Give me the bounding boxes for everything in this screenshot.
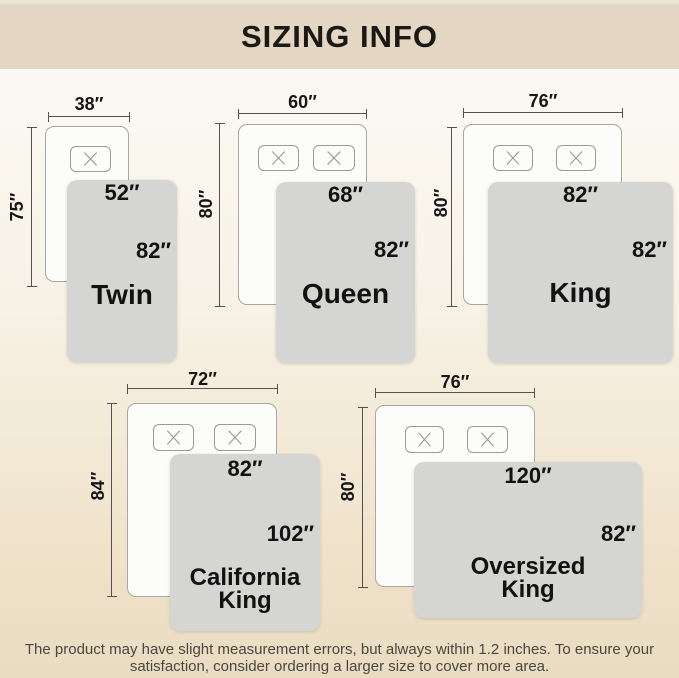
bed-length-label: 80″ [196, 174, 216, 234]
blanket-length-label: 82″ [276, 239, 409, 261]
size-name: Twin [67, 282, 177, 308]
size-name-line2: King [170, 589, 320, 612]
disclaimer-line1: The product may have slight measurement … [0, 641, 679, 658]
pillow-x-icon [258, 145, 299, 171]
size-name-line1: Oversized [414, 555, 642, 578]
bed-width-dimension-line [375, 388, 535, 398]
size-name-line2: King [414, 578, 642, 601]
header-band: SIZING INFO [0, 0, 679, 69]
blanket: 82″ 102″ California King [170, 454, 320, 631]
size-name: King [488, 280, 673, 306]
blanket-width-label: 82″ [488, 184, 673, 206]
size-name: California King [170, 566, 320, 612]
bed-width-dimension-line [48, 112, 130, 122]
bed-length-label: 75″ [7, 177, 27, 237]
blanket-length-label: 82″ [67, 240, 171, 262]
blanket-width-label: 120″ [414, 465, 642, 487]
size-name: Queen [276, 281, 415, 307]
pillow-x-icon [313, 145, 355, 171]
bed-length-dimension-line [447, 127, 457, 307]
bed-length-dimension-line [27, 127, 37, 287]
size-name-line1: Queen [276, 281, 415, 307]
sizing-info-page: SIZING INFO 38″ 75″ 52″ 82″ Twin 60″ 80″ [0, 0, 679, 678]
bed-length-dimension-line [107, 403, 117, 597]
blanket: 52″ 82″ Twin [67, 180, 177, 362]
pillow-x-icon [556, 145, 596, 171]
blanket: 120″ 82″ Oversized King [414, 462, 642, 618]
pillow-x-icon [405, 426, 444, 453]
blanket: 68″ 82″ Queen [276, 182, 415, 363]
blanket-length-label: 102″ [170, 523, 314, 545]
bed-width-dimension-line [127, 384, 278, 394]
bed-width-dimension-line [238, 109, 367, 119]
blanket: 82″ 82″ King [488, 182, 673, 363]
pillow-x-icon [467, 426, 508, 453]
blanket-length-label: 82″ [488, 239, 667, 261]
bed-width-label: 38″ [48, 95, 130, 113]
size-name-line1: Twin [67, 282, 177, 308]
bed-length-dimension-line [358, 407, 368, 588]
bed-length-label: 80″ [338, 457, 358, 517]
size-name-line1: King [488, 280, 673, 306]
bed-length-label: 84″ [88, 456, 108, 516]
disclaimer-text: The product may have slight measurement … [0, 641, 679, 675]
size-name: Oversized King [414, 555, 642, 601]
size-name-line1: California [170, 566, 320, 589]
pillow-x-icon [493, 145, 533, 171]
pillow-x-icon [214, 424, 256, 451]
blanket-width-label: 52″ [67, 182, 177, 204]
bed-length-dimension-line [215, 123, 225, 307]
blanket-width-label: 68″ [276, 184, 415, 206]
bed-width-dimension-line [463, 108, 623, 118]
page-title: SIZING INFO [241, 19, 438, 55]
disclaimer-line2: satisfaction, consider ordering a larger… [0, 658, 679, 675]
blanket-length-label: 82″ [414, 523, 636, 545]
pillow-x-icon [70, 146, 111, 172]
blanket-width-label: 82″ [170, 458, 320, 480]
pillow-x-icon [153, 424, 194, 451]
